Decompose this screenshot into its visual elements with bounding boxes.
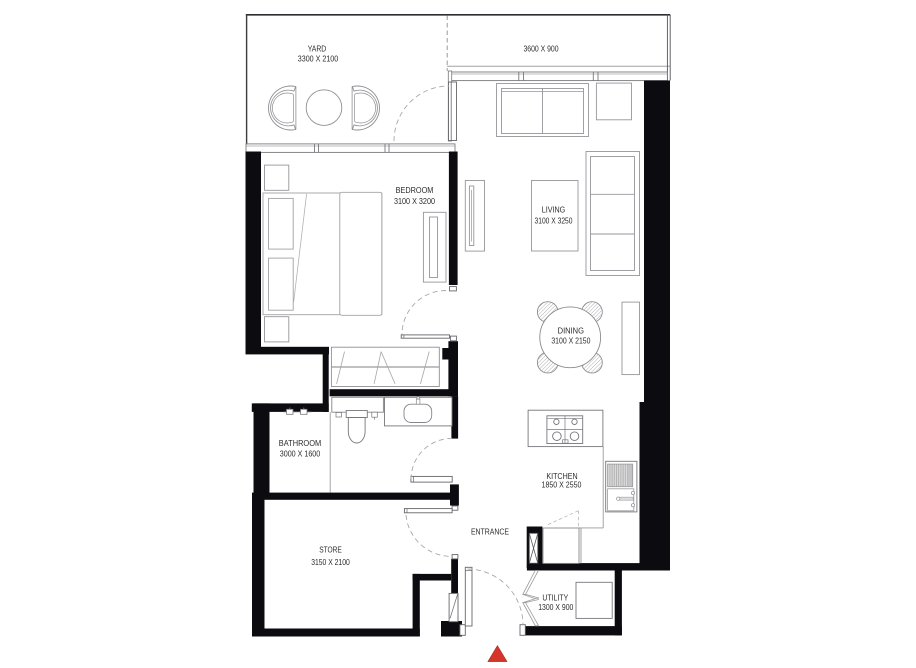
svg-text:YARD: YARD [308,44,327,54]
svg-text:BEDROOM: BEDROOM [396,185,434,195]
svg-text:3300 X 2100: 3300 X 2100 [298,54,339,64]
svg-text:3000 X 1600: 3000 X 1600 [280,449,321,459]
svg-text:ENTRANCE: ENTRANCE [471,527,509,537]
svg-text:LIVING: LIVING [542,205,566,215]
svg-text:1850 X 2550: 1850 X 2550 [542,480,582,490]
svg-text:3100 X 3200: 3100 X 3200 [394,196,435,206]
svg-text:3100 X 2150: 3100 X 2150 [551,335,590,345]
svg-text:STORE: STORE [319,545,342,555]
svg-text:BATHROOM: BATHROOM [279,438,321,448]
svg-text:DINING: DINING [558,326,585,336]
svg-text:1300 X 900: 1300 X 900 [538,602,573,612]
svg-text:3150 X 2100: 3150 X 2100 [311,557,350,567]
svg-text:3100 X 3250: 3100 X 3250 [535,216,573,226]
svg-text:3600 X 900: 3600 X 900 [523,44,558,54]
